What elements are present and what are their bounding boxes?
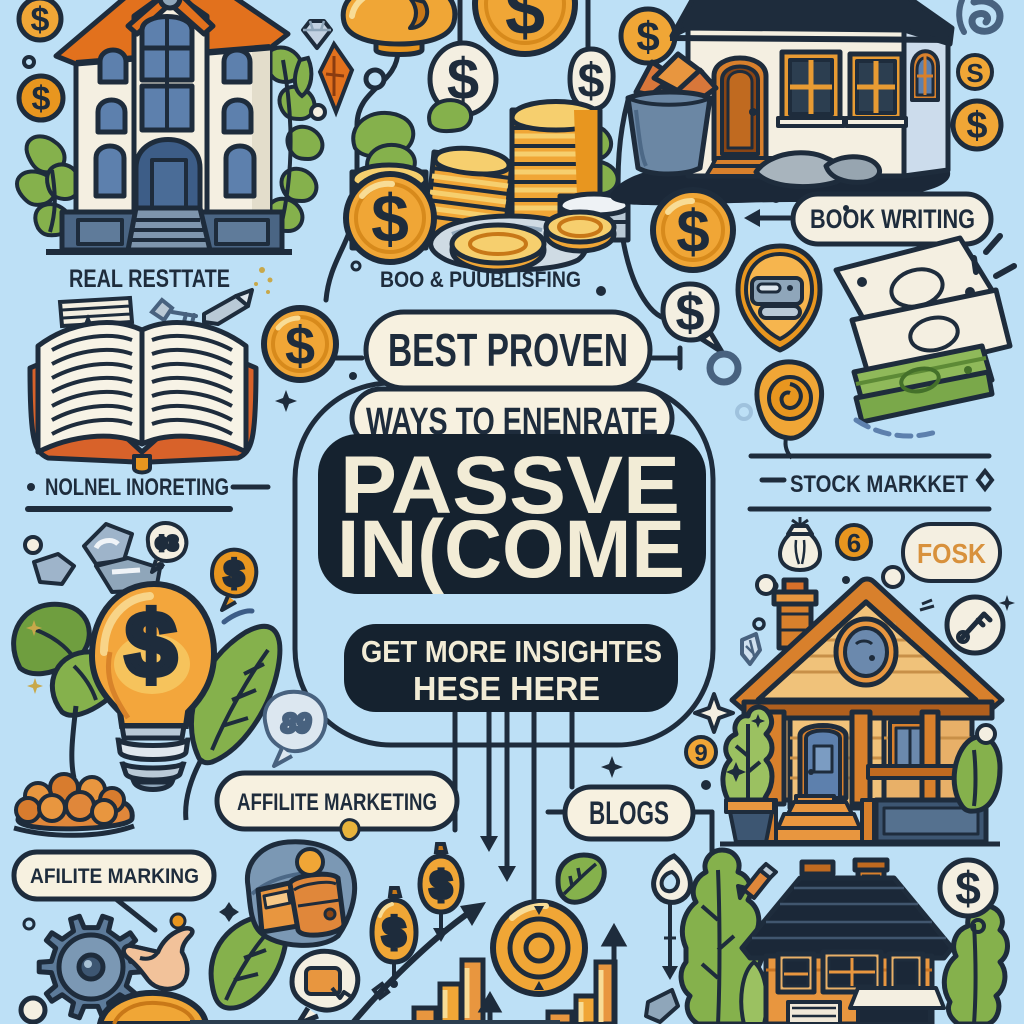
svg-text:GET MORE INSIGHTES: GET MORE INSIGHTES: [361, 634, 662, 669]
svg-text:AFFILITE MARKETING: AFFILITE MARKETING: [237, 789, 437, 816]
svg-text:$: $: [125, 594, 176, 696]
svg-text:$: $: [224, 553, 244, 594]
svg-text:$: $: [285, 316, 315, 376]
svg-text:$: $: [676, 198, 709, 265]
svg-text:$: $: [371, 181, 409, 257]
svg-text:STOCK MARKKET: STOCK MARKKET: [790, 471, 968, 498]
svg-text:AFILITE MARKING: AFILITE MARKING: [30, 865, 199, 888]
svg-text:$: $: [636, 13, 659, 60]
svg-text:6: 6: [847, 528, 861, 558]
svg-text:S: S: [966, 58, 983, 88]
svg-text:FOSK: FOSK: [917, 538, 986, 569]
svg-text:$: $: [505, 0, 545, 50]
svg-text:9: 9: [694, 740, 707, 767]
svg-text:REAL RESTTATE: REAL RESTTATE: [69, 265, 230, 293]
svg-text:BEST PROVEN: BEST PROVEN: [388, 324, 628, 376]
svg-text:BLOGS: BLOGS: [589, 795, 669, 831]
svg-text:$: $: [955, 862, 981, 914]
svg-text:$: $: [966, 105, 987, 147]
svg-text:¢3: ¢3: [156, 533, 178, 555]
svg-text:IN(COME: IN(COME: [337, 504, 685, 595]
svg-text:HESE HERE: HESE HERE: [413, 670, 600, 707]
svg-text:NOLNEL INORETING: NOLNEL INORETING: [45, 474, 229, 501]
svg-text:$: $: [676, 284, 705, 342]
svg-text:$: $: [31, 1, 50, 39]
svg-text:$: $: [383, 911, 405, 955]
svg-text:BOOK WRITING: BOOK WRITING: [810, 204, 975, 234]
svg-text:$: $: [430, 865, 451, 907]
svg-text:$: $: [578, 55, 605, 108]
svg-text:89: 89: [282, 708, 311, 738]
svg-text:$: $: [32, 80, 51, 118]
svg-text:BOO & PUUBLISFING: BOO & PUUBLISFING: [380, 267, 581, 292]
